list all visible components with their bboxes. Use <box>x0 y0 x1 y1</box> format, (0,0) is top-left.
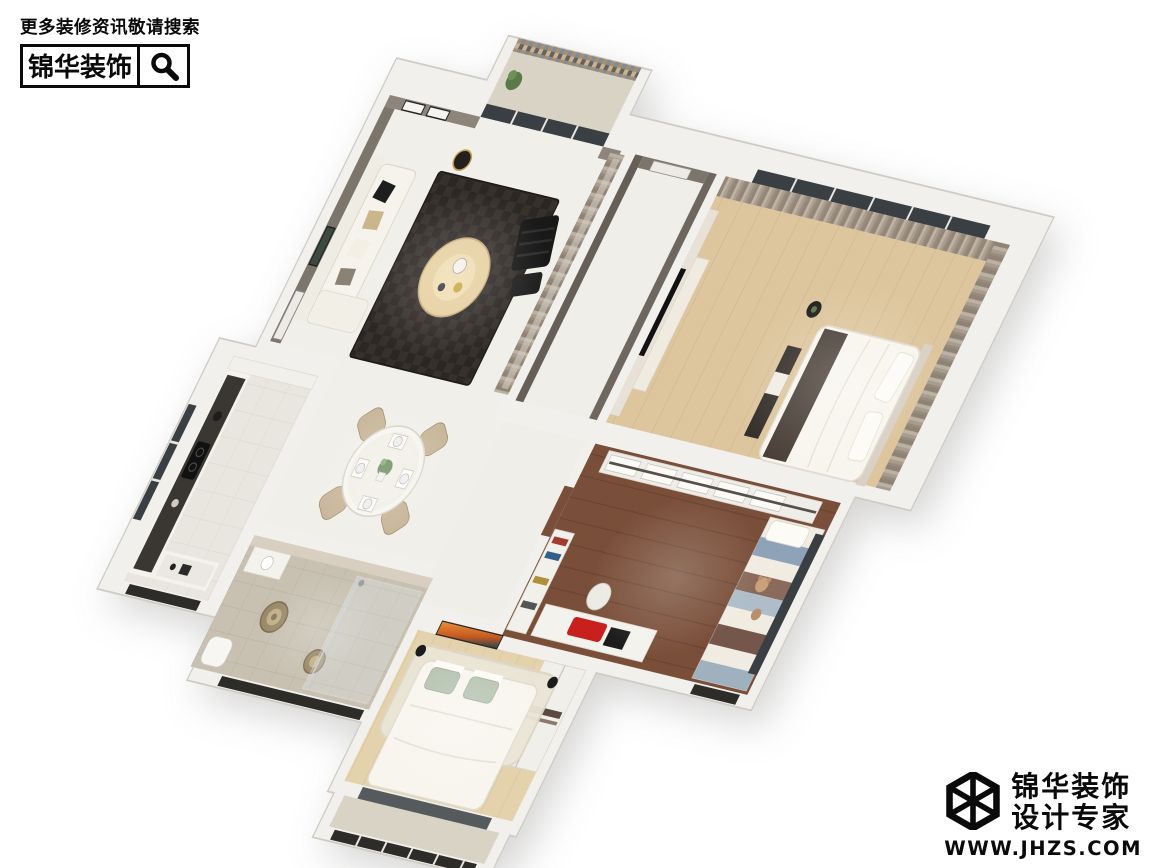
brand-name: 锦华装饰 <box>1011 772 1131 803</box>
page: 更多装修资讯敬请搜索 锦华装饰 锦华装饰 设计专家 <box>0 0 1158 868</box>
magnifier-icon <box>140 51 187 81</box>
watermark-search: 更多装修资讯敬请搜索 锦华装饰 <box>20 14 200 88</box>
cube-logo-icon <box>944 772 1002 834</box>
search-prompt: 更多装修资讯敬请搜索 <box>20 14 200 39</box>
brand-tagline: 设计专家 <box>1011 803 1131 834</box>
website-url: WWW.JHZS.COM <box>944 837 1142 860</box>
brand-search-box: 锦华装饰 <box>20 44 190 88</box>
floorplan-render <box>0 0 1158 868</box>
watermark-brand: 锦华装饰 设计专家 WWW.JHZS.COM <box>944 772 1142 860</box>
brand-name: 锦华装饰 <box>23 47 137 86</box>
